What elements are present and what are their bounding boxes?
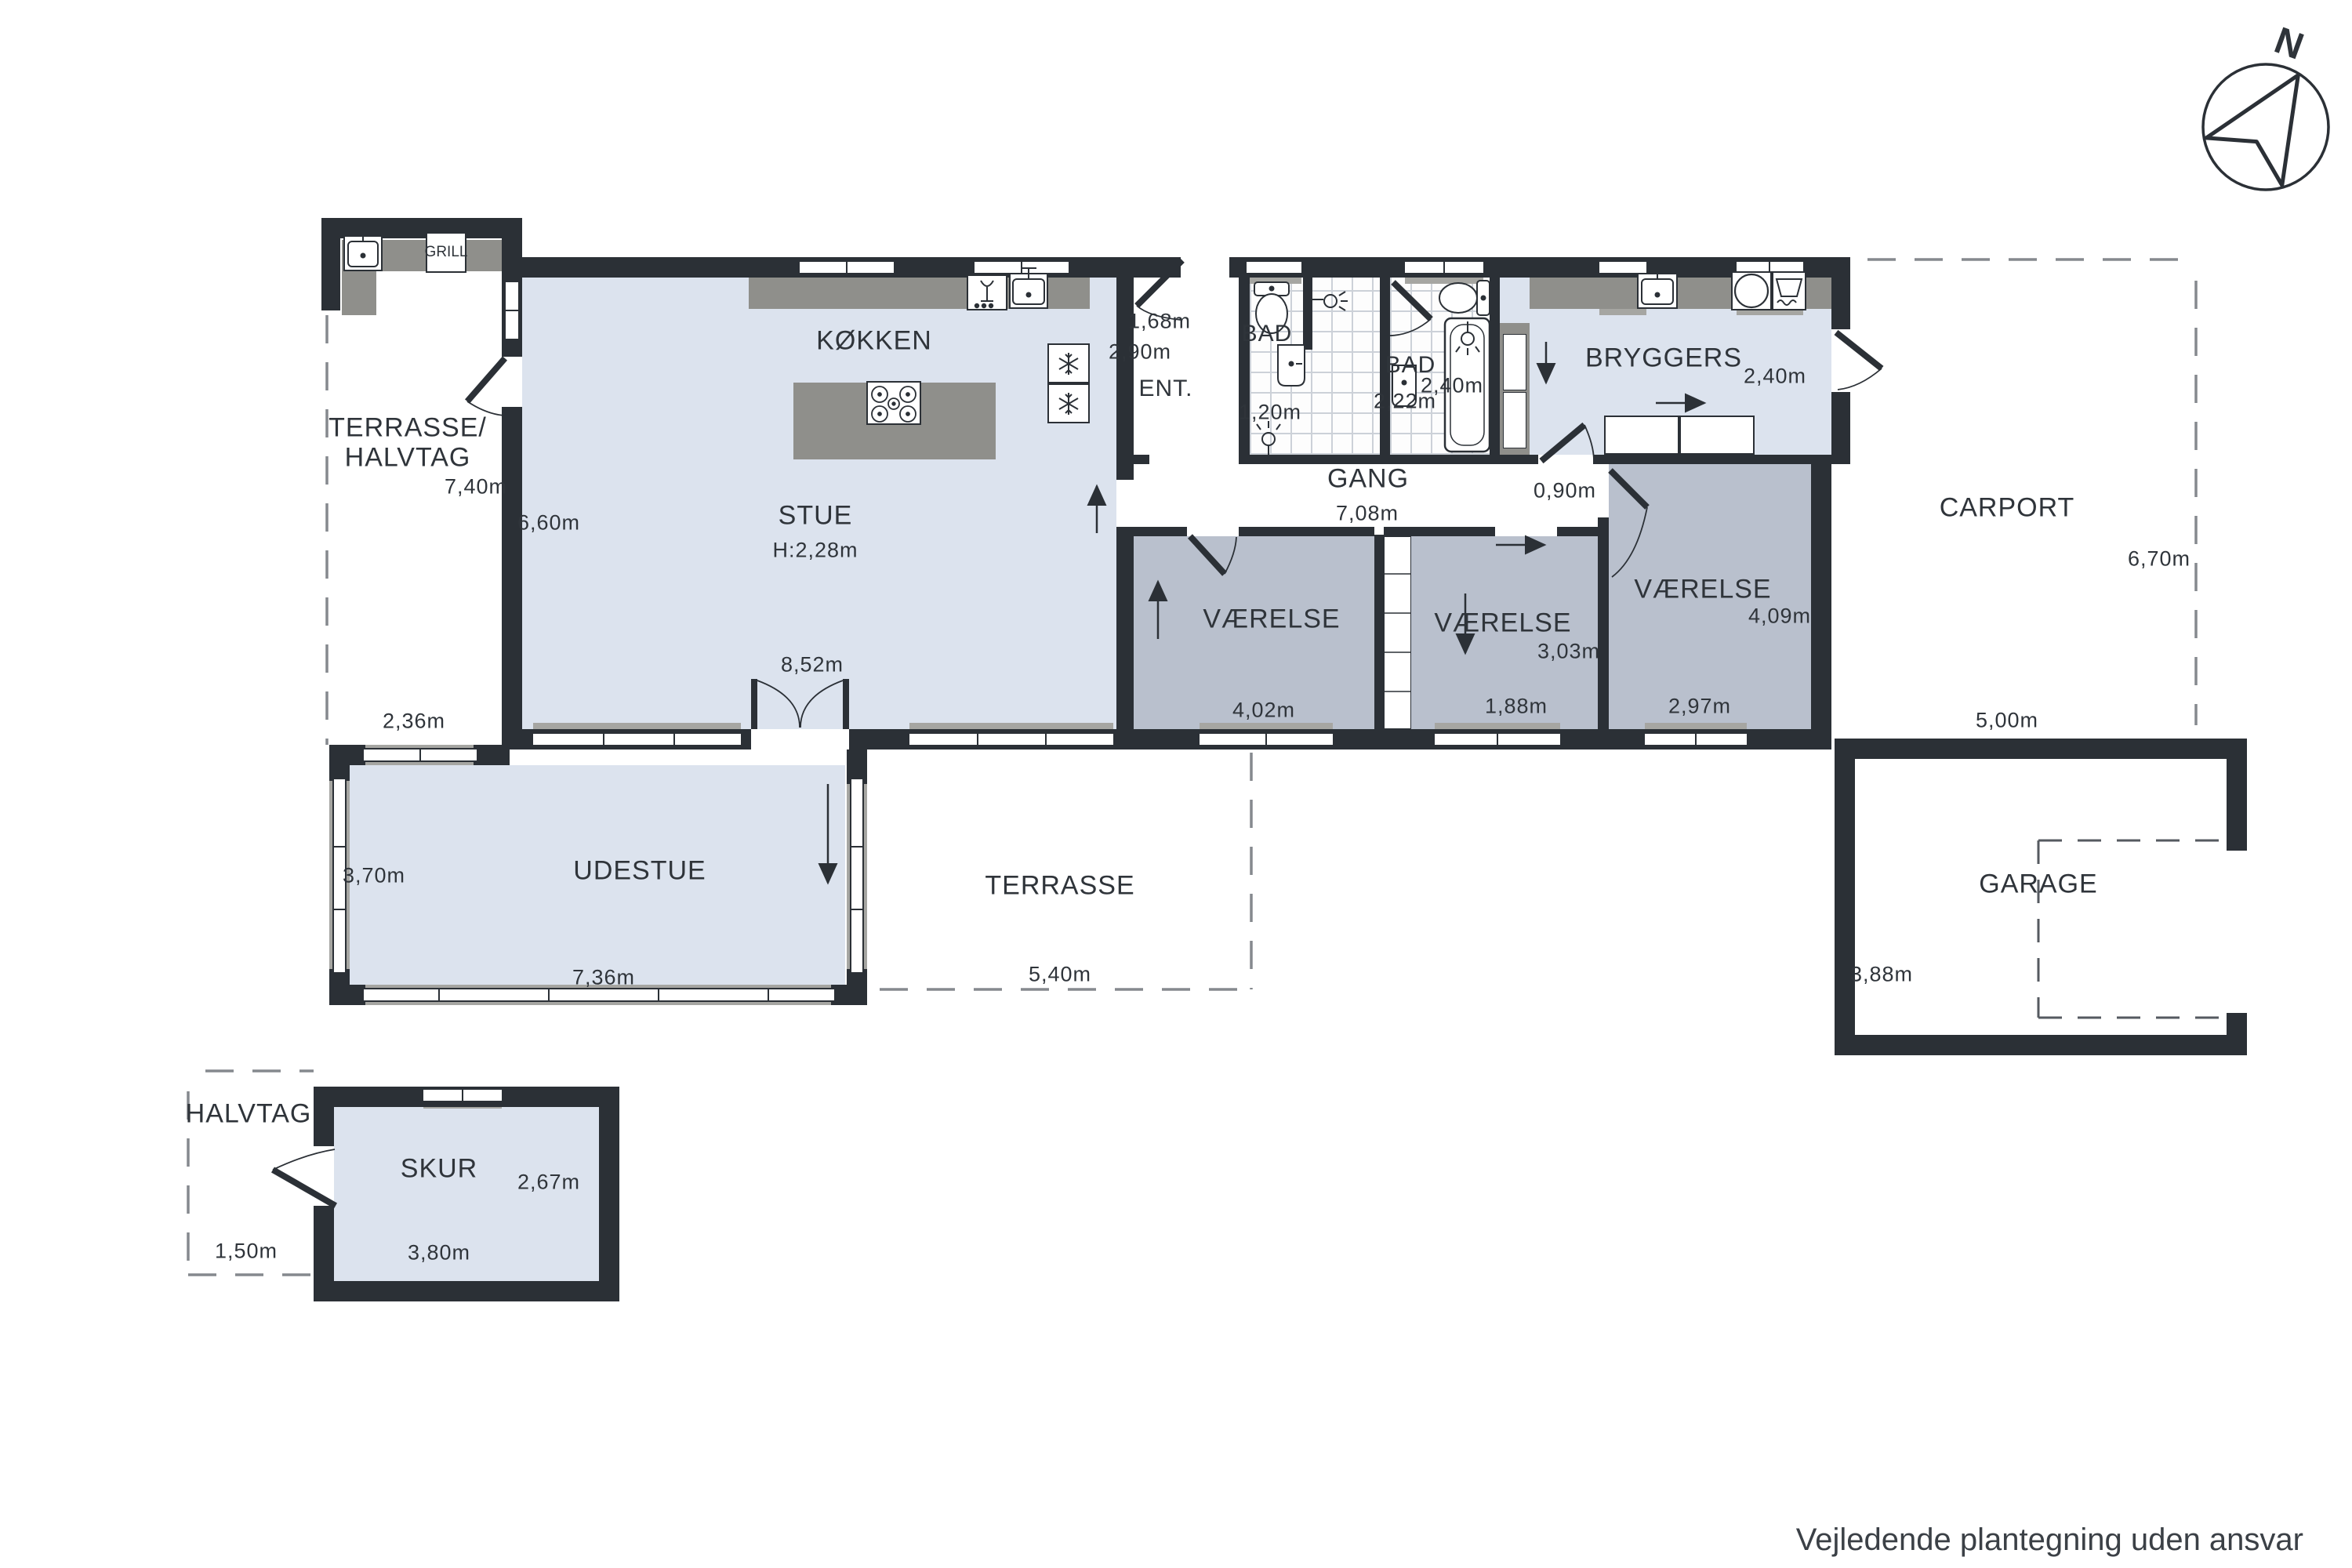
outdoor-sink-icon: [348, 230, 378, 267]
vaerelse2-height-dim: 3,03m: [1537, 640, 1600, 664]
stue-ceiling: H:2,28m: [772, 539, 858, 563]
udestue-label: UDESTUE: [573, 856, 706, 887]
plan-vector-overlay: [0, 0, 2352, 1568]
udestue-width-dim: 7,36m: [572, 966, 635, 990]
vaerelse3-height-dim: 4,09m: [1748, 604, 1811, 629]
vaerelse2-label: VÆRELSE: [1434, 608, 1571, 639]
bathroom-sink-icon: [1278, 345, 1305, 386]
skur-label: SKUR: [401, 1154, 477, 1185]
bryggers-label: BRYGGERS: [1585, 343, 1742, 374]
koekken-label: KØKKEN: [816, 326, 932, 357]
ceiling-light-icon: [1257, 421, 1280, 458]
compass-icon: [2203, 52, 2336, 190]
gang-passage-dim: 0,90m: [1534, 479, 1596, 503]
skur-width-dim: 3,80m: [408, 1241, 470, 1265]
terrasse-halvtag-gap-dim: 2,36m: [383, 710, 445, 734]
ent-width-dim: 1,68m: [1128, 310, 1191, 334]
bryggers-sink-icon: [1642, 268, 1673, 304]
closet-shelves: [1385, 574, 1410, 691]
garage-door-dashed: [2038, 840, 2233, 1018]
ent-label: ENT.: [1138, 376, 1192, 402]
skur-height-dim: 2,67m: [517, 1171, 580, 1195]
washing-machine-icon: [1735, 274, 1768, 307]
stue-label: STUE: [779, 501, 853, 532]
shower-head-icon: [1312, 292, 1348, 310]
doors: [273, 260, 1882, 1206]
garage-width-dim: 5,00m: [1976, 709, 2038, 733]
toilet-icon: [1439, 281, 1490, 315]
gang-length-dim: 7,08m: [1336, 502, 1399, 526]
stue-width-dim: 8,52m: [781, 653, 844, 677]
gang-label: GANG: [1327, 464, 1409, 495]
bad2-height-dim: 2,40m: [1421, 374, 1483, 398]
grill-label: GRILL: [425, 244, 468, 261]
stue-height-dim: 6,60m: [517, 511, 580, 535]
vaerelse3-width-dim: 2,97m: [1668, 695, 1731, 719]
terrasse-halvtag-label-1: TERRASSE/: [328, 413, 487, 444]
vaerelse2-width-dim: 1,88m: [1485, 695, 1548, 719]
garage-label: GARAGE: [1979, 869, 2097, 900]
halvtag-width-dim: 1,50m: [215, 1240, 278, 1264]
terrasse-halvtag-dim: 7,40m: [445, 475, 507, 499]
dryer-icon: [1777, 279, 1802, 305]
floor-plan: GRILL TERRASSE/ HALVTAG 7,40m 2,36m KØKK…: [0, 0, 2352, 1568]
halvtag-label: HALVTAG: [186, 1099, 312, 1130]
ent-height-dim: 2,90m: [1109, 340, 1171, 365]
garage-height-dim: 3,88m: [1850, 963, 1913, 987]
terrasse-label: TERRASSE: [985, 871, 1134, 902]
udestue-height-dim: 3,70m: [343, 864, 405, 888]
kitchen-sink-icon: [1013, 268, 1044, 304]
bryggers-height-dim: 2,40m: [1744, 365, 1806, 389]
disclaimer-text: Vejledende plantegning uden ansvar: [1796, 1523, 2303, 1558]
vaerelse1-width-dim: 4,02m: [1232, 699, 1295, 723]
bad1-label: BAD: [1242, 321, 1293, 347]
carport-height-dim: 6,70m: [2128, 547, 2190, 572]
cooktop-icon: [872, 387, 916, 422]
terrasse-halvtag-label-2: HALVTAG: [345, 443, 471, 474]
snowflake-icon: [1059, 353, 1078, 415]
bad1-dim: 1,20m: [1239, 401, 1301, 425]
terrasse-width-dim: 5,40m: [1029, 963, 1091, 987]
dishwasher-icon: [975, 281, 993, 307]
carport-label: CARPORT: [1940, 493, 2075, 524]
vaerelse3-label: VÆRELSE: [1634, 575, 1771, 605]
vaerelse1-label: VÆRELSE: [1203, 604, 1340, 635]
